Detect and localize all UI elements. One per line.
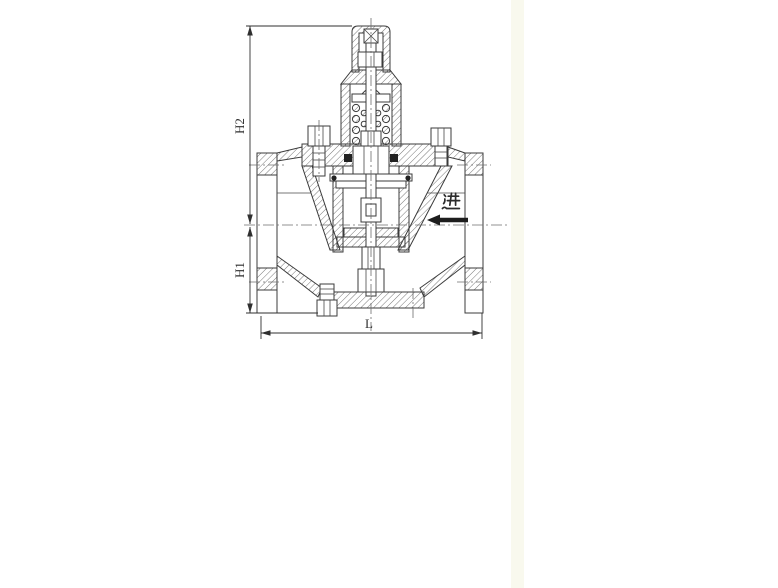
- scan-tint-strip: [511, 0, 524, 588]
- dimension-l: L: [261, 313, 482, 339]
- drain-plug: [317, 284, 337, 316]
- dim-label-h2: H2: [232, 118, 247, 134]
- bottom-cover: [330, 288, 424, 320]
- inlet-character: [442, 193, 459, 208]
- valve-section-drawing: H2 H1 L: [0, 0, 778, 588]
- drawing-canvas: H2 H1 L: [0, 0, 778, 588]
- dim-label-h1: H1: [232, 262, 247, 278]
- lock-nut: [358, 52, 382, 67]
- outlet-flange: [249, 153, 285, 313]
- dim-label-l: L: [365, 316, 373, 331]
- inlet-flange: [457, 153, 491, 313]
- flow-arrow-icon: [427, 215, 468, 226]
